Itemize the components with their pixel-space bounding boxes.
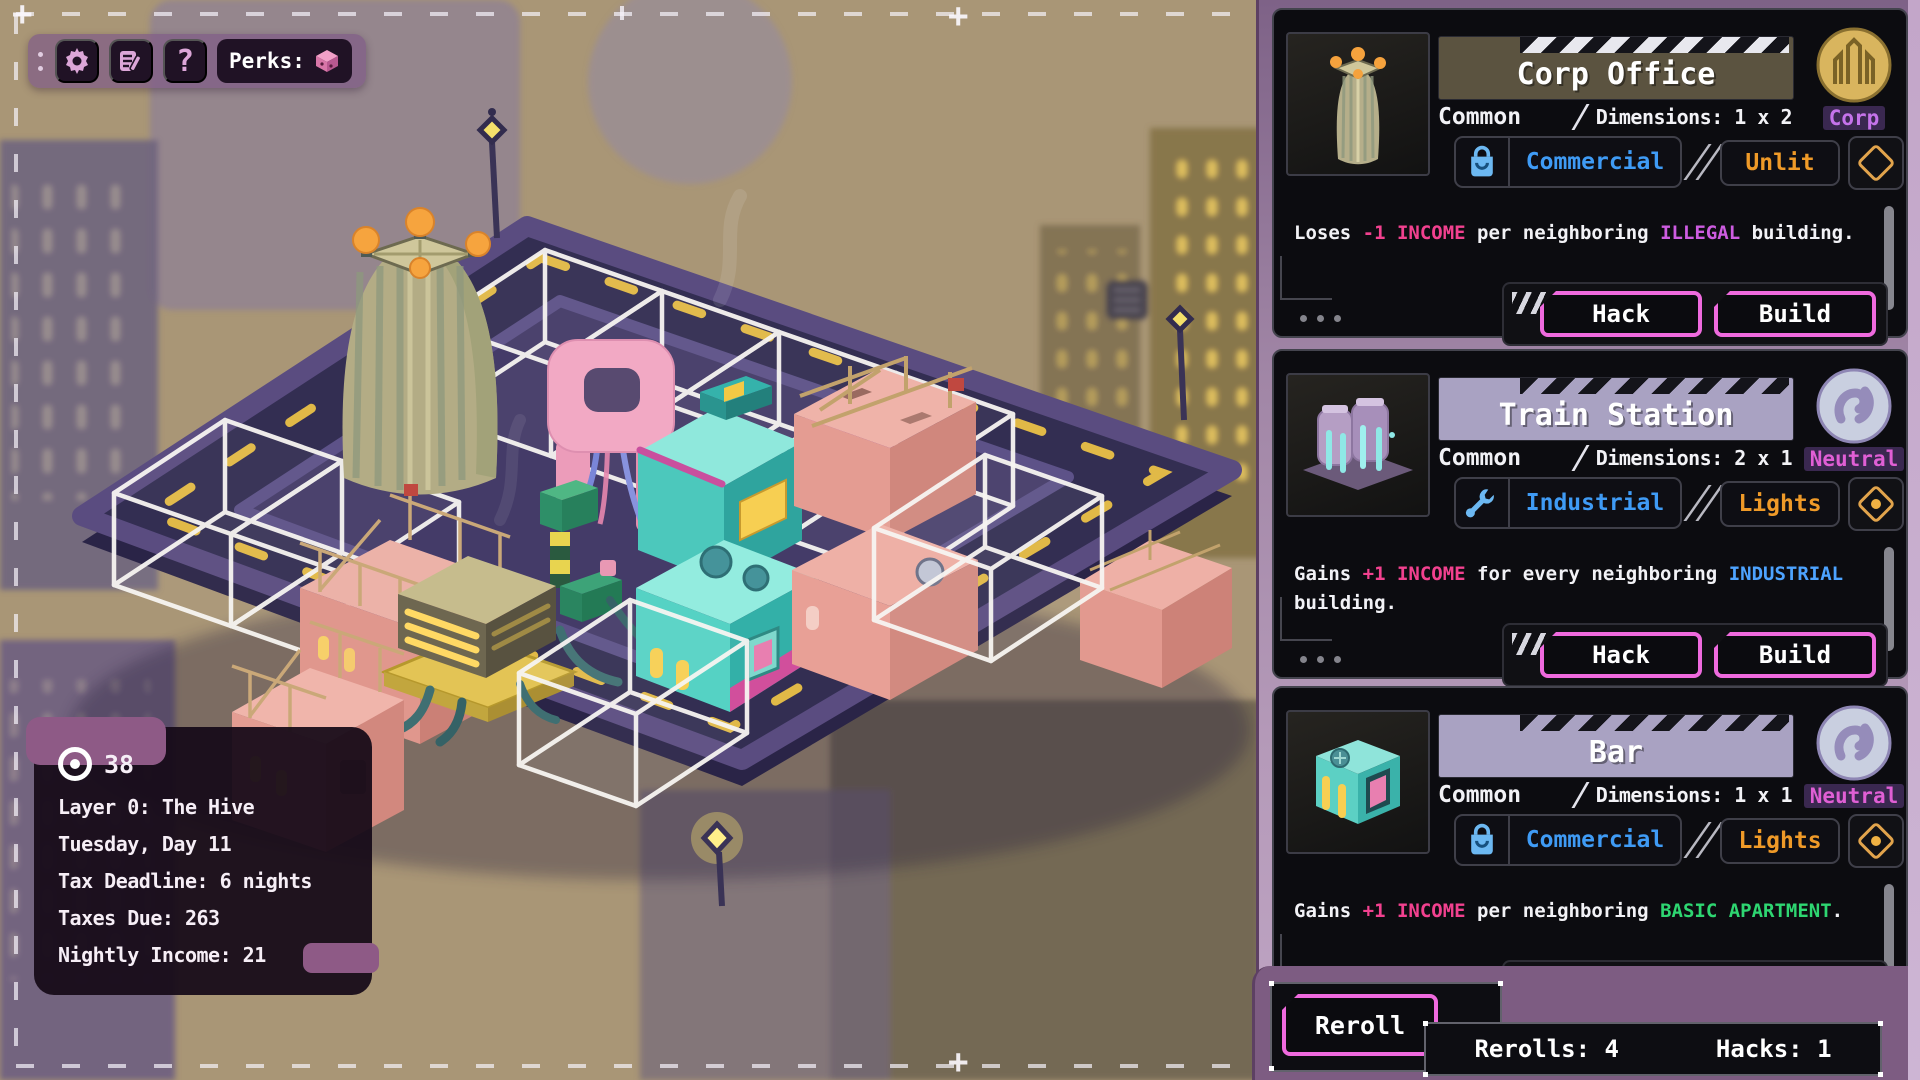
stats-panel: 38 Layer 0: The Hive Tuesday, Day 11 Tax… bbox=[34, 727, 372, 995]
reroll-button[interactable]: Reroll bbox=[1282, 994, 1438, 1056]
card-dots-decoration bbox=[1300, 656, 1341, 663]
category-label: Industrial bbox=[1510, 490, 1680, 516]
light-label: Lights bbox=[1738, 491, 1821, 517]
category-tag[interactable]: Industrial bbox=[1454, 477, 1682, 529]
toolbar-grip-dots bbox=[38, 52, 43, 71]
faction-label: Neutral bbox=[1804, 784, 1905, 808]
build-button[interactable]: Build bbox=[1714, 632, 1876, 678]
hazard-stripes bbox=[1520, 37, 1789, 53]
dimensions-label: Dimensions: 1 x 2 bbox=[1596, 105, 1792, 129]
card-title-bar: Corp Office bbox=[1438, 36, 1794, 100]
help-button[interactable]: ? bbox=[163, 39, 207, 83]
dimensions-label: Dimensions: 2 x 1 bbox=[1596, 446, 1792, 470]
shopping-bag-icon bbox=[1456, 816, 1510, 864]
building-thumbnail bbox=[1286, 32, 1430, 176]
divider-slash bbox=[1571, 782, 1589, 808]
building-thumbnail bbox=[1286, 710, 1430, 854]
building-card-corp-office: Corp Office Common Dimensions: 1 x 2 Cor… bbox=[1272, 8, 1908, 338]
hack-button[interactable]: Hack bbox=[1540, 632, 1702, 678]
rarity-label: Common bbox=[1438, 782, 1521, 808]
perks-cube-icon bbox=[314, 48, 340, 74]
gear-icon bbox=[63, 47, 91, 75]
faction-badge: Neutral bbox=[1798, 367, 1910, 475]
category-label: Commercial bbox=[1510, 827, 1680, 853]
nightly-income-label: Nightly Income: 21 bbox=[58, 937, 348, 974]
card-meta-row: Common Dimensions: 1 x 1 bbox=[1438, 780, 1792, 810]
tag-divider-decoration bbox=[1686, 481, 1720, 525]
log-button[interactable] bbox=[109, 39, 153, 83]
corp-faction-icon bbox=[1815, 26, 1893, 104]
bar-thumb-icon bbox=[1288, 712, 1428, 852]
card-meta-row: Common Dimensions: 2 x 1 bbox=[1438, 443, 1792, 473]
divider-slash bbox=[1571, 104, 1589, 130]
rerolls-count: Rerolls: 4 bbox=[1474, 1035, 1619, 1063]
card-description: Gains +1 INCOME per neighboring BASIC AP… bbox=[1294, 897, 1860, 926]
card-dots-decoration bbox=[1300, 315, 1341, 322]
taxes-due-label: Taxes Due: 263 bbox=[58, 900, 348, 937]
counters-bar: Rerolls: 4 Hacks: 1 bbox=[1424, 1022, 1882, 1076]
settings-button[interactable] bbox=[55, 39, 99, 83]
currency-icon bbox=[58, 747, 92, 781]
corp-tower-building bbox=[343, 208, 498, 495]
tag-divider-decoration bbox=[1686, 140, 1720, 184]
faction-label: Neutral bbox=[1804, 447, 1905, 471]
card-title-bar: Train Station bbox=[1438, 377, 1794, 441]
tax-deadline-label: Tax Deadline: 6 nights bbox=[58, 863, 348, 900]
notes-icon bbox=[117, 47, 145, 75]
tag-divider-decoration bbox=[1686, 818, 1720, 862]
lights-diamond-icon bbox=[1856, 821, 1896, 861]
card-actions: Hack Build bbox=[1502, 623, 1888, 687]
rarity-label: Common bbox=[1438, 104, 1521, 130]
light-label: Lights bbox=[1738, 828, 1821, 854]
card-title: Train Station bbox=[1439, 398, 1793, 433]
shopping-bag-icon bbox=[1456, 138, 1510, 186]
hack-button[interactable]: Hack bbox=[1540, 291, 1702, 337]
card-meta-row: Common Dimensions: 1 x 2 bbox=[1438, 102, 1792, 132]
lights-indicator[interactable] bbox=[1848, 477, 1904, 531]
lights-indicator[interactable] bbox=[1848, 814, 1904, 868]
perks-chip[interactable]: Perks: bbox=[217, 39, 352, 83]
corner-trace-decoration bbox=[1280, 597, 1332, 641]
card-description: Gains +1 INCOME for every neighboring IN… bbox=[1294, 560, 1860, 619]
light-tag[interactable]: Lights bbox=[1720, 481, 1840, 527]
dimensions-label: Dimensions: 1 x 1 bbox=[1596, 783, 1792, 807]
category-tag[interactable]: Commercial bbox=[1454, 814, 1682, 866]
divider-slash bbox=[1571, 445, 1589, 471]
building-card-train-station: Train Station Common Dimensions: 2 x 1 N… bbox=[1272, 349, 1908, 679]
corner-trace-decoration bbox=[1280, 256, 1332, 300]
faction-label: Corp bbox=[1823, 106, 1886, 130]
lights-indicator[interactable] bbox=[1848, 136, 1904, 190]
light-tag[interactable]: Unlit bbox=[1720, 140, 1840, 186]
question-mark-icon: ? bbox=[176, 44, 194, 79]
right-edge-strip bbox=[1908, 0, 1920, 1080]
category-label: Commercial bbox=[1510, 149, 1680, 175]
rarity-label: Common bbox=[1438, 445, 1521, 471]
card-title: Bar bbox=[1439, 735, 1793, 770]
hacks-count: Hacks: 1 bbox=[1716, 1035, 1832, 1063]
card-actions: Hack Build bbox=[1502, 282, 1888, 346]
build-button[interactable]: Build bbox=[1714, 291, 1876, 337]
wrench-icon bbox=[1456, 479, 1510, 527]
hazard-stripes bbox=[1520, 715, 1789, 731]
day-label: Tuesday, Day 11 bbox=[58, 826, 348, 863]
category-tag[interactable]: Commercial bbox=[1454, 136, 1682, 188]
corp-office-thumb-icon bbox=[1288, 34, 1428, 174]
hazard-stripes bbox=[1520, 378, 1789, 394]
building-thumbnail bbox=[1286, 373, 1430, 517]
unlit-diamond-icon bbox=[1856, 143, 1896, 183]
game-viewport: + + + ? Perks: bbox=[0, 0, 1920, 1080]
train-station-thumb-icon bbox=[1288, 375, 1428, 515]
card-description: Loses -1 INCOME per neighboring ILLEGAL … bbox=[1294, 219, 1860, 248]
neutral-faction-icon bbox=[1815, 704, 1893, 782]
card-title-bar: Bar bbox=[1438, 714, 1794, 778]
perks-label: Perks: bbox=[229, 49, 305, 73]
currency-amount: 38 bbox=[104, 750, 134, 779]
light-tag[interactable]: Lights bbox=[1720, 818, 1840, 864]
faction-badge: Corp bbox=[1798, 26, 1910, 134]
neutral-faction-icon bbox=[1815, 367, 1893, 445]
faction-badge: Neutral bbox=[1798, 704, 1910, 812]
lights-diamond-icon bbox=[1856, 484, 1896, 524]
layer-label: Layer 0: The Hive bbox=[58, 789, 348, 826]
card-title: Corp Office bbox=[1439, 57, 1793, 92]
toolbar: ? Perks: bbox=[28, 34, 366, 88]
light-label: Unlit bbox=[1745, 150, 1814, 176]
